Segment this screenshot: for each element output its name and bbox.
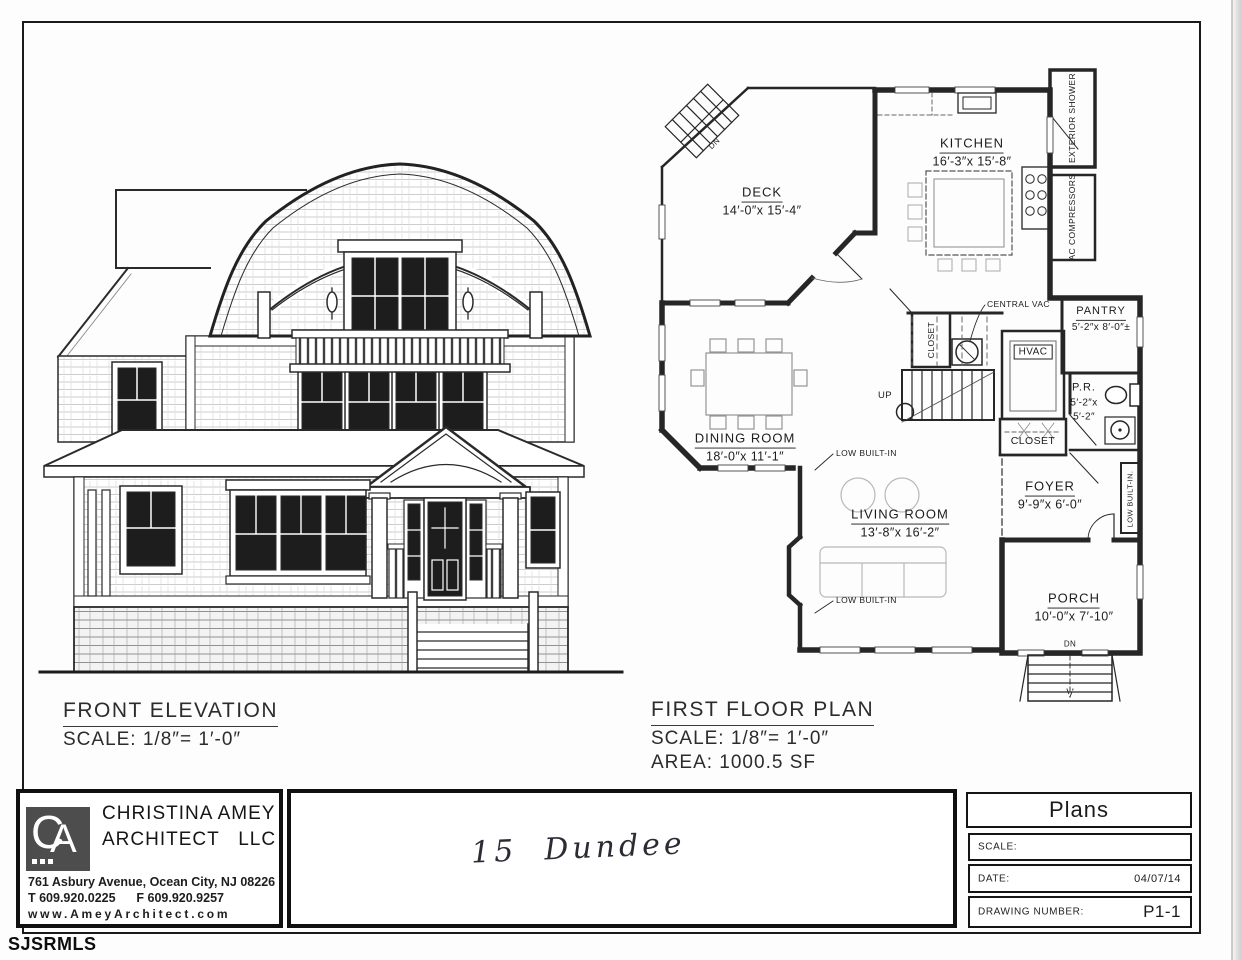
closet-upper-label: CLOSET [926, 322, 936, 358]
pantry-dims: 5′-2″x 8′-0″± [1072, 322, 1130, 335]
central-vac-label: CENTRAL VAC [987, 299, 1050, 309]
front-elevation-scale: SCALE: 1/8″= 1′-0″ [63, 729, 241, 751]
pantry-name: PANTRY [1076, 305, 1126, 321]
handwritten-project-name: 15 Dundee [470, 826, 686, 870]
deck-name: DECK [742, 185, 782, 203]
room-label-living: LIVING ROOM 13′-8″x 16′-2″ [851, 505, 949, 542]
architect-website: www.AmeyArchitect.com [28, 907, 230, 921]
architect-logo: C A [26, 807, 90, 871]
logo-dot [48, 859, 53, 864]
date-value: 04/07/14 [1134, 873, 1181, 885]
plans-title-block: Plans SCALE: DATE: 04/07/14 DRAWING NUMB… [966, 789, 1197, 930]
first-floor-plan-drawing: DECK 14′-0″x 15′-4″ KITCHEN 16′-3″x 15′-… [650, 55, 1210, 745]
living-dims: 13′-8″x 16′-2″ [851, 526, 949, 542]
living-name: LIVING ROOM [851, 507, 949, 525]
dining-name: DINING ROOM [695, 431, 796, 449]
plans-box-title: Plans [966, 792, 1192, 828]
low-built-in-side-label: LOW BUILT-IN. [1126, 471, 1135, 528]
room-label-powder-room: P.R. 5′-2″x 5′-2″ [1070, 377, 1097, 424]
architect-address: 761 Asbury Avenue, Ocean City, NJ 08226 [28, 875, 275, 889]
ac-compressors-label: AC COMPRESSORS [1067, 174, 1077, 261]
closet-lower-label: CLOSET [1011, 435, 1055, 447]
porch-dims: 10′-0″x 7′-10″ [1035, 610, 1114, 626]
porch-name: PORCH [1048, 591, 1100, 609]
architect-title-block: C A CHRISTINA AMEY ARCHITECT LLC 761 Asb… [16, 789, 283, 928]
architect-name-line2: ARCHITECT LLC [102, 829, 276, 851]
floor-plan-scale: SCALE: 1/8″= 1′-0″ [651, 728, 829, 750]
architect-name-line1: CHRISTINA AMEY [102, 803, 275, 825]
powder-room-dims-1: 5′-2″x [1070, 398, 1097, 411]
room-label-dining: DINING ROOM 18′-0″x 11′-1″ [695, 429, 796, 466]
deck-dims: 14′-0″x 15′-4″ [723, 204, 802, 220]
date-label: DATE: [978, 873, 1010, 884]
drawing-sheet: DECK 14′-0″x 15′-4″ KITCHEN 16′-3″x 15′-… [0, 0, 1241, 960]
mls-watermark: SJSRMLS [8, 934, 97, 955]
dining-dims: 18′-0″x 11′-1″ [695, 450, 796, 466]
powder-room-name: P.R. [1072, 382, 1096, 397]
room-label-porch: PORCH 10′-0″x 7′-10″ [1035, 589, 1114, 626]
plans-box-scale-row: SCALE: [968, 833, 1192, 861]
plans-box-date-row: DATE: 04/07/14 [968, 864, 1192, 893]
scale-label: SCALE: [978, 842, 1017, 853]
drawing-number-value: P1-1 [1143, 902, 1181, 922]
floor-plan-area: AREA: 1000.5 SF [651, 752, 816, 774]
low-built-in-lower-label: LOW BUILT-IN [836, 595, 897, 605]
logo-dot [32, 859, 37, 864]
first-floor-plan-svg [650, 55, 1210, 745]
up-label: UP [878, 390, 892, 401]
dn-porch-label: DN [1064, 640, 1076, 649]
scan-edge-shadow [1231, 0, 1241, 960]
powder-room-dims-2: 5′-2″ [1070, 411, 1097, 424]
front-elevation-title: FRONT ELEVATION [63, 699, 278, 727]
room-label-foyer: FOYER 9′-9″x 6′-0″ [1018, 477, 1082, 514]
logo-dot [40, 859, 45, 864]
hvac-label: HVAC [1014, 345, 1053, 360]
exterior-shower-label: EXTERIOR SHOWER [1067, 73, 1077, 163]
room-label-kitchen: KITCHEN 16′-3″x 15′-8″ [933, 134, 1012, 171]
foyer-name: FOYER [1025, 479, 1075, 497]
floor-plan-title: FIRST FLOOR PLAN [651, 698, 874, 726]
room-label-deck: DECK 14′-0″x 15′-4″ [723, 183, 802, 220]
front-elevation-drawing [28, 140, 628, 685]
drawing-number-label: DRAWING NUMBER: [978, 907, 1084, 918]
kitchen-dims: 16′-3″x 15′-8″ [933, 155, 1012, 171]
kitchen-name: KITCHEN [940, 136, 1004, 154]
low-built-in-upper-label: LOW BUILT-IN [836, 448, 897, 458]
room-label-pantry: PANTRY 5′-2″x 8′-0″± [1072, 300, 1130, 334]
plans-box-drawing-number-row: DRAWING NUMBER: P1-1 [968, 896, 1192, 928]
project-name-block: 15 Dundee [287, 789, 957, 928]
foyer-dims: 9′-9″x 6′-0″ [1018, 498, 1082, 514]
logo-letter-a: A [50, 817, 77, 862]
architect-phone: T 609.920.0225 F 609.920.9257 [28, 891, 224, 905]
front-elevation-svg [28, 140, 628, 685]
